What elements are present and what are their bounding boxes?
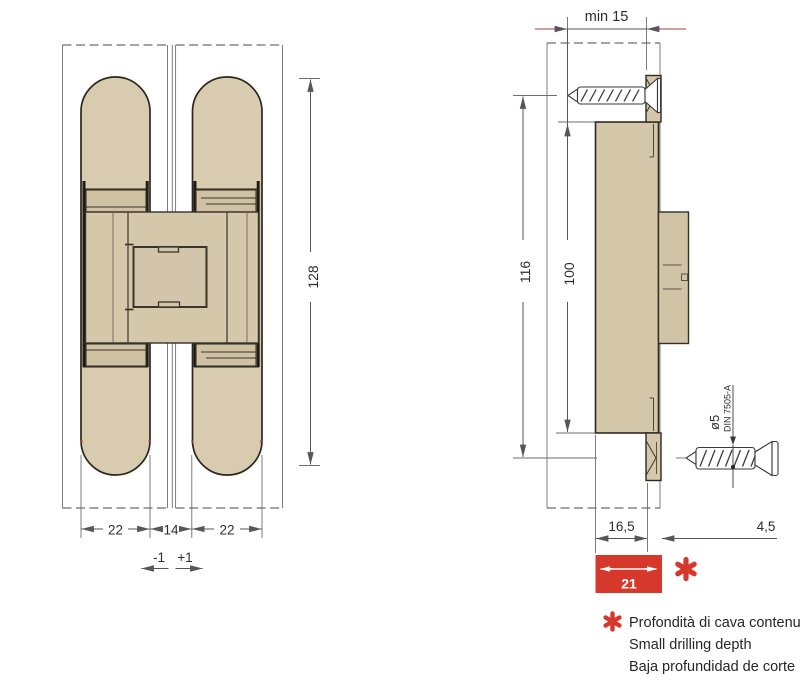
tolerance-plus: +1 xyxy=(177,550,192,565)
mounting-lug-bottom xyxy=(646,433,661,481)
dim-min-clearance-label: min 15 xyxy=(585,9,629,25)
screw-spec-label: ø5 DIN 7505-A xyxy=(707,385,736,488)
dim-plate-depth-label: 4,5 xyxy=(757,519,776,534)
footnote: Profondità di cava contenu Small drillin… xyxy=(606,614,800,676)
dim-total-length: 128 xyxy=(299,79,321,466)
footnote-english: Small drilling depth xyxy=(629,637,752,653)
dim-total-length-label: 128 xyxy=(305,265,321,289)
registration-mark xyxy=(81,441,83,443)
dim-plate-depth: 4,5 xyxy=(662,519,777,539)
technical-drawing-page: 22 14 22 -1 +1 128 xyxy=(0,0,800,691)
adjustment-block xyxy=(659,212,689,344)
dim-overall-height: 116 xyxy=(513,96,597,459)
dim-body-depth: 16,5 xyxy=(596,435,648,553)
dim-body-height-label: 100 xyxy=(561,262,577,286)
asterisk-icon xyxy=(678,560,694,579)
screw-standard-label: DIN 7505-A xyxy=(723,385,733,432)
screw-diameter-label: ø5 xyxy=(707,415,722,430)
dim-body-depth-label: 16,5 xyxy=(608,519,634,534)
dim-center-gap: 14 xyxy=(163,523,179,538)
footnote-italian: Profondità di cava contenu xyxy=(629,615,800,631)
dim-min-clearance: min 15 xyxy=(535,9,686,78)
registration-mark xyxy=(149,441,151,443)
dim-tolerance: -1 +1 xyxy=(142,550,203,569)
dim-left-leaf-width: 22 xyxy=(108,523,123,538)
hinge-technical-drawing: 22 14 22 -1 +1 128 xyxy=(0,0,800,691)
dim-drilling-depth-label: 21 xyxy=(621,576,637,592)
hinge-body-side xyxy=(596,76,689,481)
dim-right-leaf-width: 22 xyxy=(219,523,234,538)
leader-arrow-down xyxy=(730,437,736,446)
front-view: 22 14 22 -1 +1 128 xyxy=(63,45,322,569)
asterisk-icon xyxy=(606,614,620,630)
screw-bottom xyxy=(676,442,778,476)
registration-mark xyxy=(191,441,193,443)
side-view: min 15 116 100 xyxy=(513,9,778,593)
drilling-depth-box: 21 xyxy=(596,555,695,593)
dim-overall-height-label: 116 xyxy=(517,261,533,284)
registration-mark xyxy=(260,441,262,443)
tolerance-minus: -1 xyxy=(153,550,165,565)
footnote-spanish: Baja profundidad de corte xyxy=(629,659,795,675)
